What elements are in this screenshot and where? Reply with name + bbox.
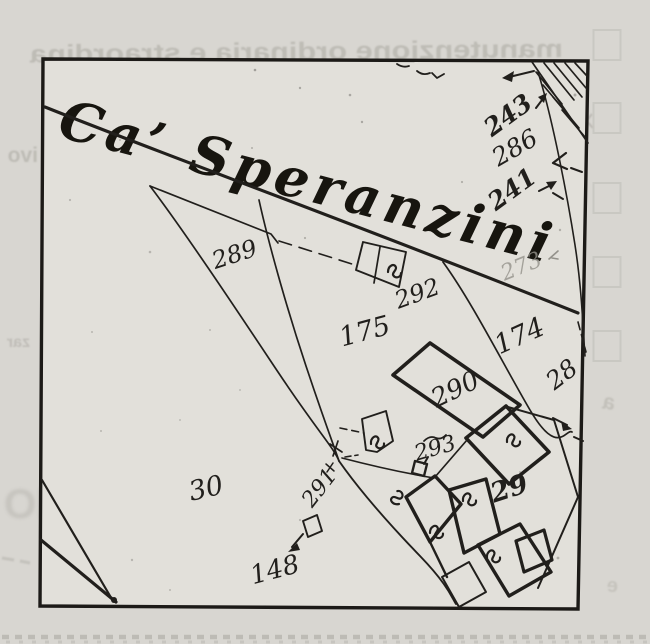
bleedthrough-right-mark-2: e — [607, 575, 618, 597]
bleedthrough-left-text-1: ivo — [8, 144, 38, 167]
cadastral-map-scan: manutenzione ordinaria e straordina ivo … — [0, 0, 650, 644]
bleedthrough-left-text-2: zar — [7, 334, 30, 351]
